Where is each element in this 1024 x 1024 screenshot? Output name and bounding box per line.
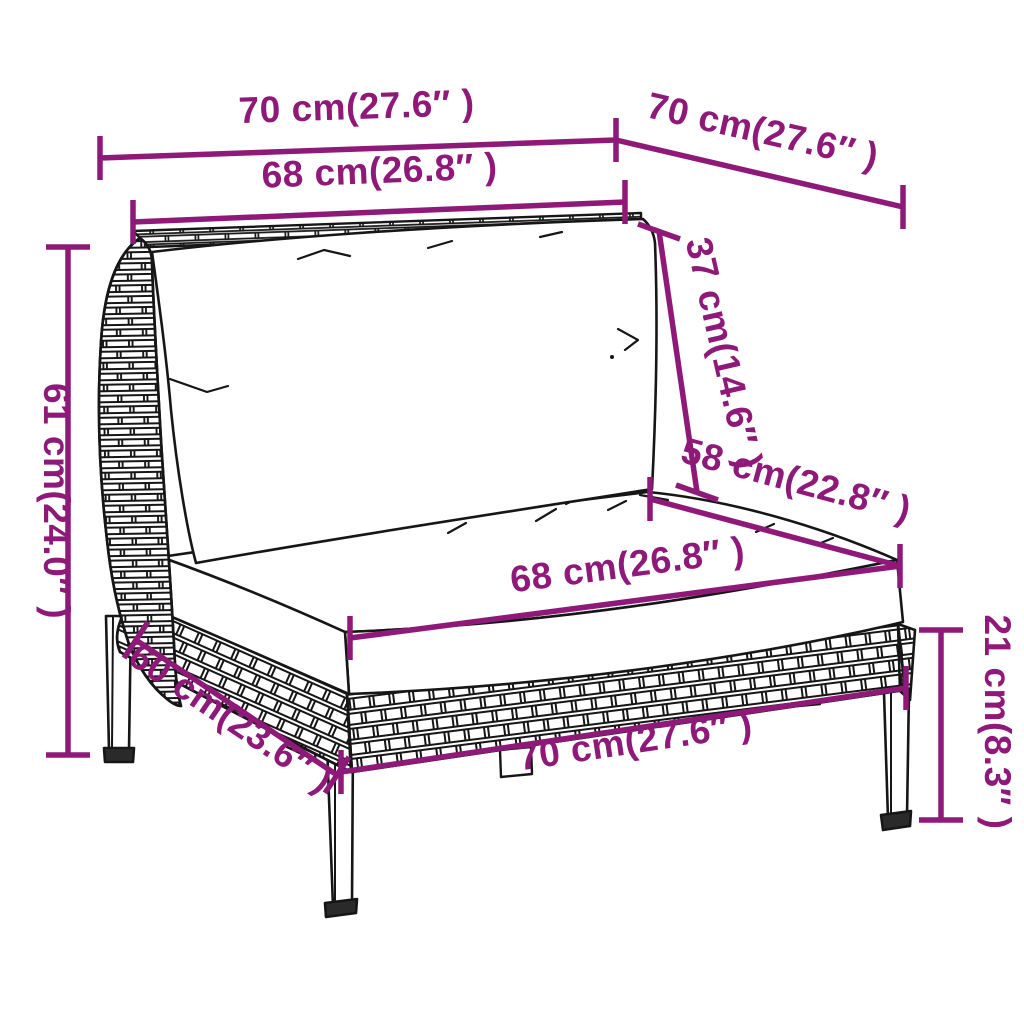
sofa-illustration (99, 213, 915, 917)
dim-label-top-depth: 70 cm(27.6″ ) (643, 85, 882, 177)
dim-leg-height: 21 cm(8.3″ ) (919, 615, 1018, 830)
dim-top-depth: 70 cm(27.6″ ) (616, 85, 903, 229)
dim-label-back-cushion-width: 68 cm(26.8″ ) (261, 145, 499, 195)
back-cushion-dot (610, 355, 614, 359)
sofa-leg-right (881, 689, 911, 830)
dim-label-overall-height: 61 cm(24.0″ ) (36, 383, 77, 619)
dim-overall-height: 61 cm(24.0″ ) (36, 247, 90, 755)
dim-label-leg-height: 21 cm(8.3″ ) (977, 615, 1018, 830)
dimension-diagram-page: 70 cm(27.6″ ) 70 cm(27.6″ ) 68 cm(26.8″ … (0, 0, 1024, 1024)
dim-label-top-width-front: 70 cm(27.6″ ) (238, 82, 475, 131)
dimension-diagram-canvas: 70 cm(27.6″ ) 70 cm(27.6″ ) 68 cm(26.8″ … (0, 0, 1024, 1024)
